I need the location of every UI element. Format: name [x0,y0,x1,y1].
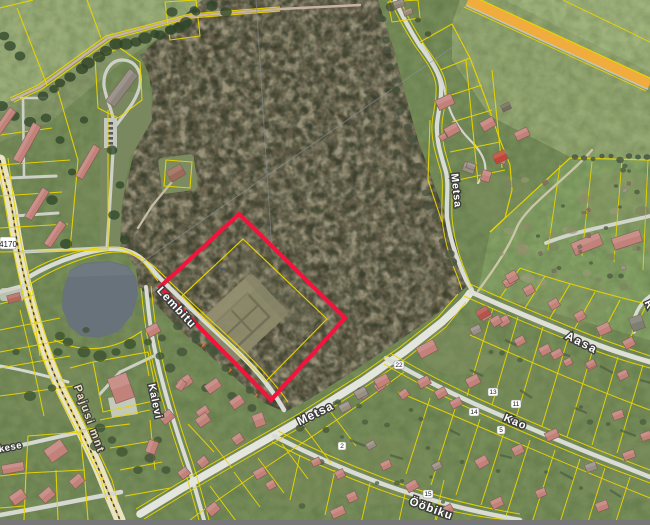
svg-text:14: 14 [470,409,478,416]
svg-text:2: 2 [340,443,344,450]
svg-text:15: 15 [424,491,432,498]
svg-text:11: 11 [513,401,520,408]
svg-text:4170: 4170 [0,240,17,249]
svg-text:22: 22 [395,362,403,369]
svg-text:13: 13 [489,389,497,396]
svg-text:5: 5 [499,427,503,434]
